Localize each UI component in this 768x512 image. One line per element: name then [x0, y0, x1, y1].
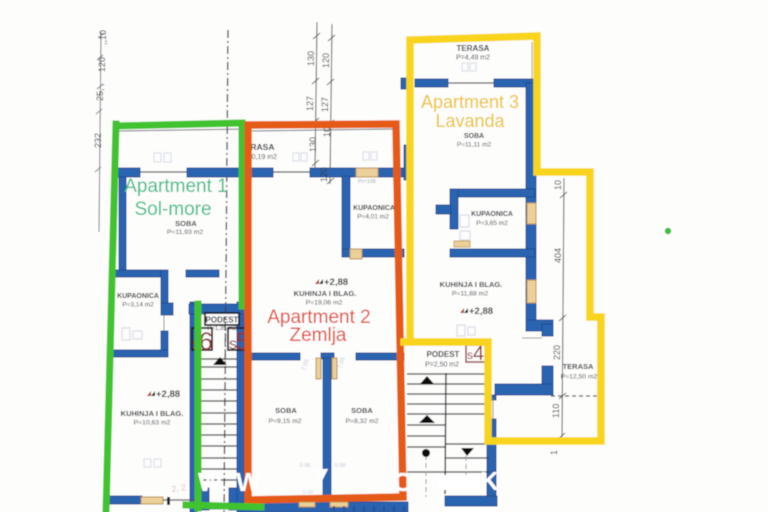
- svg-text:Pr=105: Pr=105: [358, 179, 376, 185]
- svg-text:Zemlja: Zemlja: [289, 325, 346, 346]
- svg-text:SOBA: SOBA: [275, 406, 297, 415]
- svg-text:P=11,93 m2: P=11,93 m2: [167, 229, 204, 236]
- svg-text:P=12,50 m2: P=12,50 m2: [561, 374, 598, 381]
- svg-text:404: 404: [553, 248, 563, 263]
- svg-text:0-98: 0-98: [334, 463, 345, 469]
- svg-text:W: W: [198, 467, 223, 497]
- svg-text:127: 127: [320, 97, 330, 112]
- svg-text:KUPAONICA: KUPAONICA: [353, 205, 395, 212]
- svg-text:P=11,11 m2: P=11,11 m2: [457, 142, 492, 149]
- svg-text:Apartment 3: Apartment 3: [421, 92, 519, 112]
- svg-text:120: 120: [321, 53, 331, 68]
- svg-text:P=8,32 m2: P=8,32 m2: [345, 418, 378, 425]
- svg-text:+2,88: +2,88: [324, 277, 348, 288]
- svg-text:KUHINJA I BLAG.: KUHINJA I BLAG.: [294, 289, 357, 298]
- svg-text:P=4,49 m2: P=4,49 m2: [456, 55, 490, 62]
- svg-text:25, ,: 25, ,: [95, 83, 105, 101]
- svg-text:KUPAONICA: KUPAONICA: [117, 293, 159, 300]
- svg-text:+2,88: +2,88: [469, 306, 493, 317]
- svg-text:P=2,50 m2: P=2,50 m2: [425, 362, 459, 369]
- svg-text:KUHINJA I BLAG.: KUHINJA I BLAG.: [440, 280, 503, 289]
- svg-text:4: 4: [473, 343, 484, 365]
- svg-text:W: W: [236, 467, 261, 497]
- svg-text:SOBA: SOBA: [351, 406, 373, 415]
- svg-text:P=3,65 m2: P=3,65 m2: [476, 220, 508, 227]
- svg-text:TERASA: TERASA: [563, 362, 594, 371]
- svg-text:P=19,06 m2: P=19,06 m2: [306, 300, 343, 307]
- svg-text:10: 10: [553, 180, 563, 190]
- svg-text:2, 2: 2, 2: [171, 482, 187, 494]
- svg-text:P=4,01 m2: P=4,01 m2: [357, 214, 389, 221]
- svg-text:120: 120: [319, 167, 329, 182]
- svg-text:TERASA: TERASA: [457, 44, 490, 53]
- svg-text:0-98: 0-98: [303, 490, 313, 496]
- svg-text:SOBA: SOBA: [464, 133, 484, 140]
- svg-text:P=9,15 m2: P=9,15 m2: [268, 418, 301, 425]
- svg-text:127: 127: [305, 96, 315, 111]
- svg-text:+2,88: +2,88: [156, 389, 180, 400]
- svg-text:220: 220: [552, 345, 562, 360]
- svg-text:K: K: [480, 466, 499, 496]
- svg-text:232: 232: [93, 133, 103, 148]
- svg-text:Sol-more: Sol-more: [134, 199, 211, 220]
- svg-text:110: 110: [551, 404, 561, 418]
- svg-text:KUHINJA I BLAG.: KUHINJA I BLAG.: [121, 409, 184, 418]
- svg-text:C: C: [393, 467, 412, 497]
- svg-text:0-98: 0-98: [299, 463, 310, 469]
- svg-text:P=11,88 m2: P=11,88 m2: [452, 291, 489, 298]
- svg-text:Lavanda: Lavanda: [435, 111, 505, 131]
- svg-text:PODEST: PODEST: [427, 350, 460, 359]
- svg-text:120: 120: [97, 57, 107, 72]
- svg-text:KUPAONICA: KUPAONICA: [471, 211, 513, 218]
- svg-text:130: 130: [308, 137, 318, 152]
- svg-text:PODEST: PODEST: [206, 316, 239, 325]
- svg-text:P=10,63 m2: P=10,63 m2: [134, 420, 171, 427]
- svg-text:Apartment 1: Apartment 1: [124, 176, 228, 197]
- svg-text:P=3,14 m2: P=3,14 m2: [122, 302, 154, 309]
- svg-text:130: 130: [306, 51, 316, 66]
- svg-text:,,10: ,,10: [98, 30, 108, 45]
- svg-text:SOBA: SOBA: [175, 219, 197, 228]
- svg-text:1: 1: [549, 450, 559, 455]
